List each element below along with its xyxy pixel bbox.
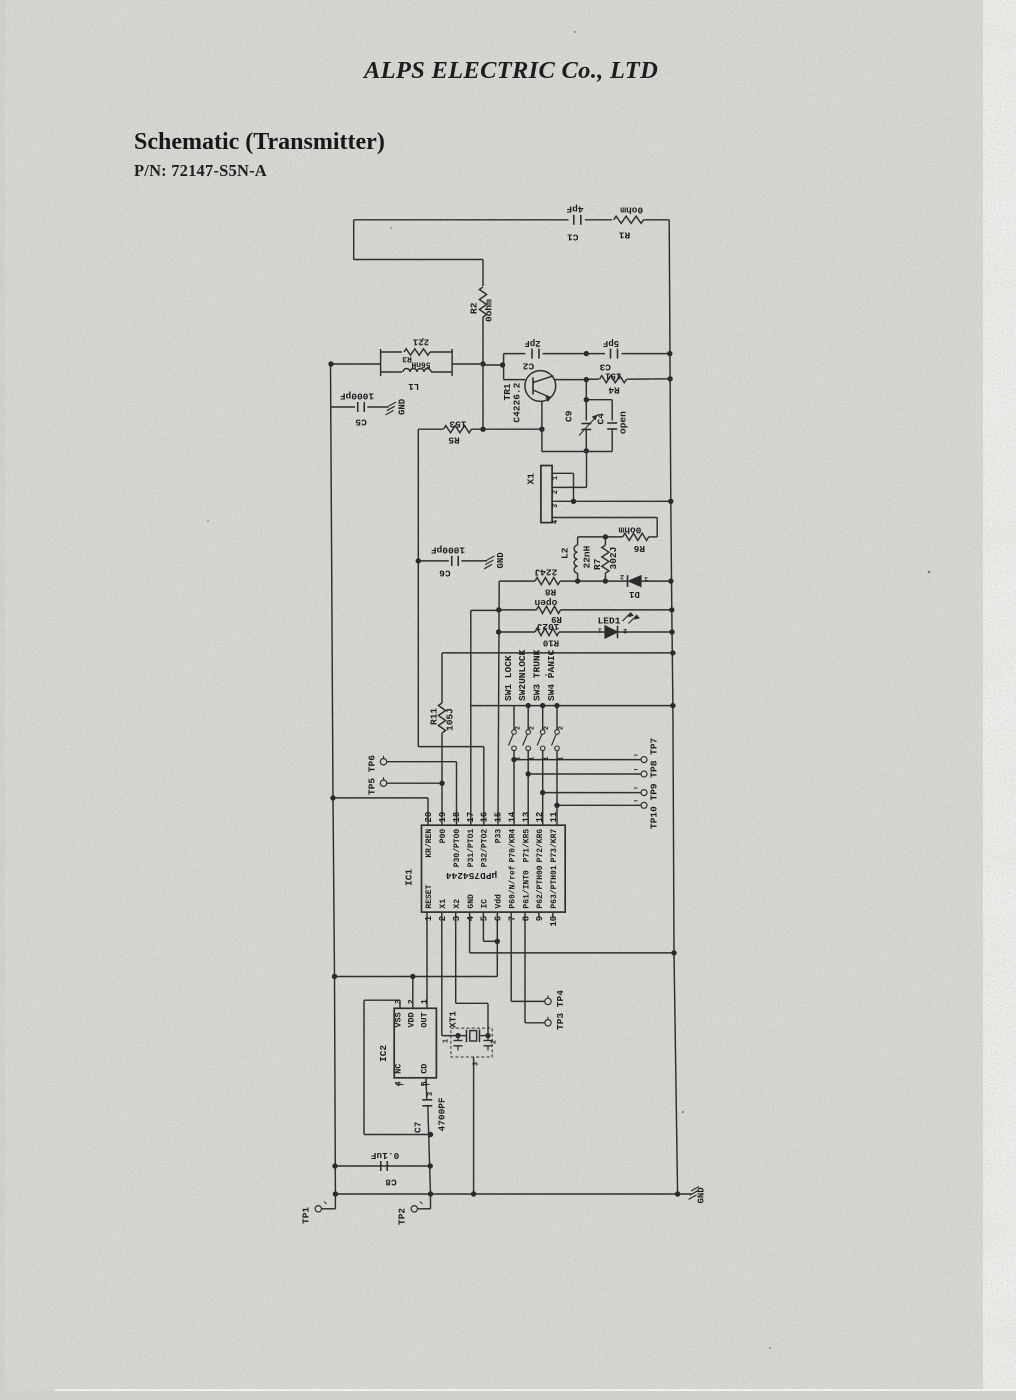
- svg-text:P33: P33: [495, 829, 504, 844]
- svg-text:4pF: 4pF: [566, 204, 583, 215]
- svg-text:D1: D1: [629, 589, 640, 599]
- svg-text:22nH: 22nH: [582, 545, 593, 568]
- svg-text:GND: GND: [467, 894, 476, 909]
- svg-text:19: 19: [438, 812, 448, 823]
- svg-text:R2: R2: [469, 302, 480, 314]
- svg-text:4: 4: [466, 915, 476, 921]
- svg-text:1: 1: [424, 915, 434, 921]
- svg-text:P00: P00: [439, 829, 448, 844]
- svg-text:8: 8: [521, 916, 531, 921]
- svg-text:P70/KR4: P70/KR4: [508, 829, 517, 863]
- svg-text:SW3 TRUNK: SW3 TRUNK: [532, 649, 543, 701]
- svg-text:P72/KR6: P72/KR6: [536, 829, 545, 863]
- svg-text:17: 17: [466, 812, 476, 823]
- svg-text:18: 18: [452, 812, 462, 823]
- svg-text:C4226.2: C4226.2: [511, 382, 522, 422]
- svg-text:TP2: TP2: [397, 1208, 408, 1225]
- svg-text:0ohm: 0ohm: [484, 299, 495, 322]
- svg-text:15: 15: [494, 812, 504, 823]
- svg-text:P60/N/ref: P60/N/ref: [508, 865, 517, 908]
- svg-text:KR/REN: KR/REN: [425, 829, 434, 858]
- svg-text:5: 5: [480, 916, 490, 921]
- svg-text:20: 20: [424, 812, 434, 823]
- svg-text:X2: X2: [453, 899, 462, 909]
- svg-text:X1: X1: [439, 899, 448, 909]
- svg-text:C1: C1: [567, 231, 579, 242]
- svg-text:153: 153: [449, 419, 466, 430]
- svg-text:2: 2: [552, 490, 560, 494]
- svg-text:2: 2: [515, 726, 522, 730]
- svg-text:1: 1: [552, 476, 560, 480]
- svg-text:14: 14: [507, 811, 517, 822]
- svg-text:R1: R1: [619, 229, 631, 240]
- svg-text:10: 10: [549, 916, 559, 927]
- svg-text:R5: R5: [448, 435, 460, 446]
- svg-text:CD: CD: [419, 1064, 429, 1074]
- svg-text:3: 3: [452, 916, 462, 921]
- svg-text:OUT: OUT: [419, 1012, 429, 1027]
- svg-text:IC1: IC1: [404, 869, 415, 886]
- svg-text:3: 3: [473, 1062, 481, 1066]
- svg-text:SW4 PANIC: SW4 PANIC: [546, 649, 557, 701]
- svg-text:2: 2: [438, 916, 448, 921]
- svg-text:2: 2: [543, 726, 550, 730]
- svg-text:GND: GND: [697, 1187, 707, 1204]
- svg-text:2: 2: [558, 726, 565, 730]
- svg-text:P73/KR7: P73/KR7: [550, 829, 559, 863]
- svg-text:VSS: VSS: [393, 1012, 403, 1027]
- svg-text:RESET: RESET: [425, 884, 434, 908]
- svg-text:µPD754244: µPD754244: [446, 870, 498, 881]
- svg-text:1000pF: 1000pF: [340, 391, 375, 402]
- svg-text:3: 3: [427, 1092, 435, 1096]
- svg-text:IC2: IC2: [378, 1045, 389, 1062]
- svg-text:GND: GND: [398, 398, 408, 415]
- svg-text:105J: 105J: [445, 708, 456, 731]
- svg-text:2: 2: [529, 726, 536, 730]
- svg-text:13: 13: [521, 812, 531, 823]
- svg-text:P32/PTO2: P32/PTO2: [481, 829, 490, 868]
- svg-text:VDD: VDD: [406, 1012, 416, 1027]
- svg-text:5pF: 5pF: [603, 338, 619, 348]
- svg-text:1: 1: [419, 999, 429, 1004]
- svg-text:C4: C4: [595, 413, 606, 425]
- svg-text:P71/KR5: P71/KR5: [522, 829, 531, 863]
- svg-text:0ohm: 0ohm: [620, 205, 643, 216]
- svg-text:C8: C8: [385, 1177, 397, 1188]
- svg-text:0ohm: 0ohm: [618, 524, 641, 535]
- svg-text:16: 16: [480, 812, 490, 823]
- svg-text:2pF: 2pF: [524, 338, 540, 348]
- svg-text:5: 5: [419, 1081, 429, 1086]
- svg-text:4: 4: [552, 520, 560, 524]
- svg-text:R10: R10: [543, 637, 559, 647]
- svg-text:12: 12: [535, 812, 545, 823]
- svg-text:9: 9: [535, 916, 545, 921]
- svg-text:TP5 TP6: TP5 TP6: [367, 755, 378, 795]
- svg-text:TP3 TP4: TP3 TP4: [555, 990, 566, 1030]
- svg-text:P31/PTO1: P31/PTO1: [467, 829, 476, 868]
- svg-text:6: 6: [494, 916, 504, 921]
- svg-text:open: open: [534, 597, 557, 608]
- svg-text:R11: R11: [429, 708, 440, 725]
- svg-text:0.1uF: 0.1uF: [370, 1150, 399, 1161]
- svg-text:L2: L2: [559, 547, 570, 559]
- svg-text:4700PF: 4700PF: [437, 1097, 448, 1132]
- svg-text:P30/PTO0: P30/PTO0: [453, 829, 462, 868]
- svg-text:SW2UNLOCK: SW2UNLOCK: [517, 649, 528, 701]
- svg-text:NC: NC: [393, 1064, 403, 1074]
- svg-text:C5: C5: [355, 416, 367, 427]
- svg-text:1: 1: [598, 627, 602, 634]
- svg-text:221: 221: [412, 337, 429, 347]
- svg-text:R7: R7: [592, 558, 603, 570]
- svg-text:1: 1: [529, 756, 536, 760]
- svg-text:R8: R8: [545, 587, 557, 598]
- svg-text:3: 3: [552, 504, 560, 508]
- svg-text:1: 1: [558, 756, 565, 760]
- svg-text:L1: L1: [408, 381, 419, 391]
- svg-text:GND: GND: [496, 552, 506, 569]
- svg-text:C2: C2: [522, 360, 534, 371]
- svg-text:7: 7: [507, 916, 517, 921]
- svg-text:P61/INT0: P61/INT0: [522, 870, 531, 909]
- svg-text:2: 2: [620, 573, 624, 580]
- svg-text:151: 151: [605, 370, 622, 380]
- svg-text:C7: C7: [412, 1121, 423, 1133]
- svg-text:XT1: XT1: [447, 1011, 458, 1028]
- svg-text:SW1 LOCK: SW1 LOCK: [503, 655, 514, 701]
- svg-text:11: 11: [549, 811, 559, 822]
- svg-text:1: 1: [543, 756, 550, 760]
- svg-text:TP1: TP1: [301, 1207, 312, 1224]
- svg-text:4: 4: [393, 1081, 403, 1086]
- svg-text:R3: R3: [402, 354, 412, 363]
- svg-text:56nH: 56nH: [411, 360, 430, 369]
- svg-text:302J: 302J: [608, 547, 619, 570]
- svg-text:224J: 224J: [534, 567, 557, 578]
- svg-text:C9: C9: [564, 410, 575, 422]
- svg-text:LED1: LED1: [598, 616, 621, 627]
- svg-text:P63/PTH01: P63/PTH01: [550, 865, 559, 908]
- svg-text:R4: R4: [608, 385, 620, 396]
- svg-text:2: 2: [406, 999, 416, 1004]
- svg-text:IC: IC: [481, 899, 490, 909]
- svg-text:2: 2: [491, 1040, 499, 1044]
- svg-text:1: 1: [644, 575, 648, 582]
- svg-text:X1: X1: [525, 473, 536, 485]
- svg-text:1000pF: 1000pF: [431, 545, 466, 556]
- svg-text:102J: 102J: [537, 621, 560, 632]
- svg-text:open: open: [618, 411, 629, 434]
- svg-text:Vdd: Vdd: [495, 894, 504, 909]
- svg-text:C6: C6: [439, 568, 451, 579]
- svg-text:R6: R6: [633, 543, 645, 554]
- svg-text:2: 2: [623, 627, 627, 634]
- svg-text:TP10 TP9 TP8 TP7: TP10 TP9 TP8 TP7: [649, 737, 660, 829]
- svg-text:P62/PTH00: P62/PTH00: [536, 865, 545, 908]
- svg-text:1: 1: [443, 1039, 451, 1043]
